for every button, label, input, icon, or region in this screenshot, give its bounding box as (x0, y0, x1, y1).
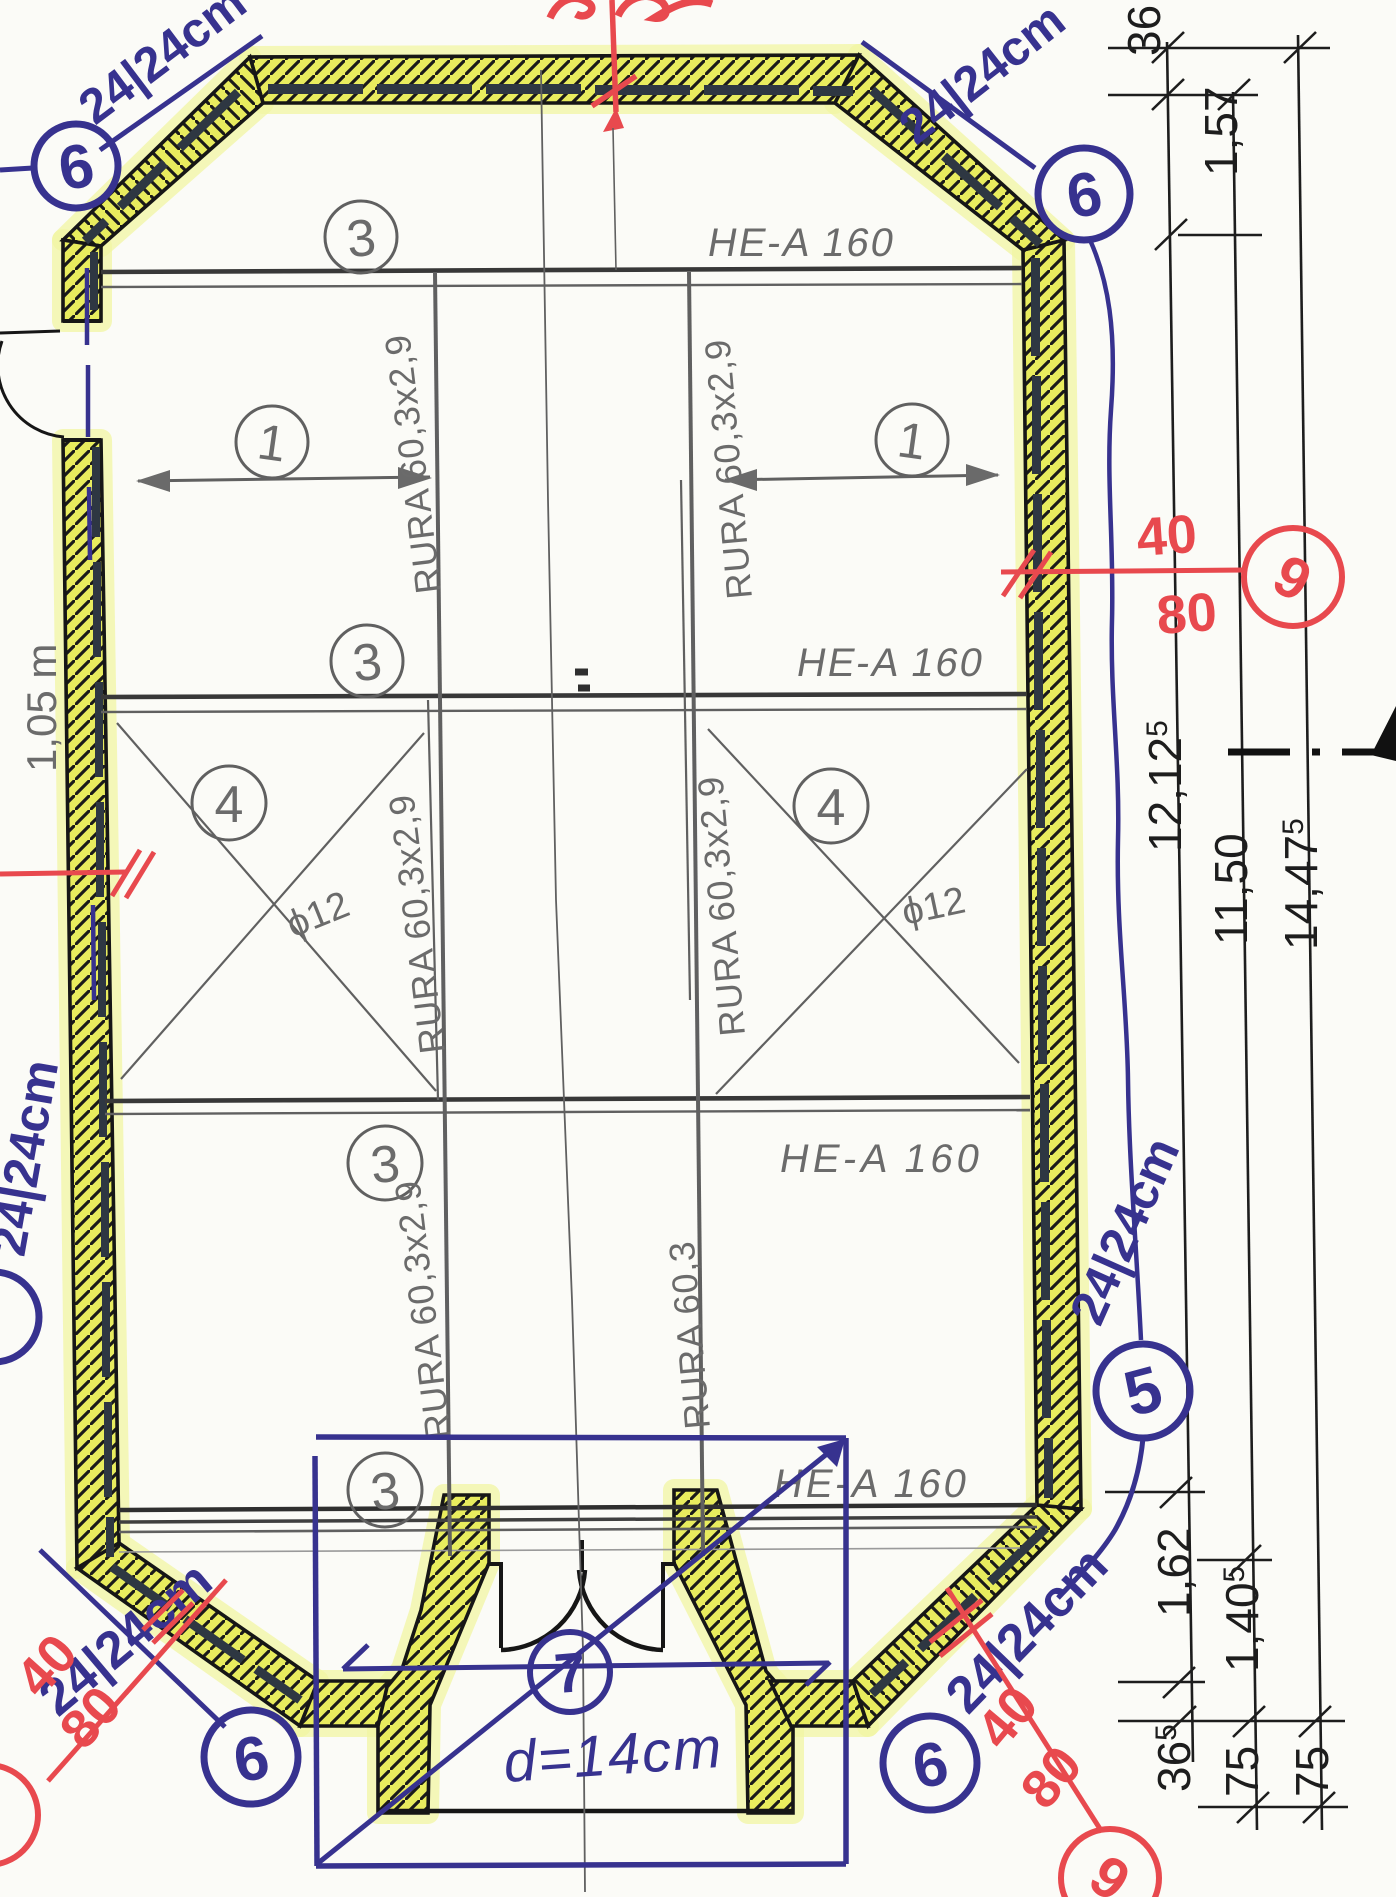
svg-text:3: 3 (350, 633, 385, 694)
svg-text:3: 3 (344, 209, 379, 270)
svg-text:40: 40 (1135, 504, 1199, 568)
svg-text:4: 4 (215, 776, 244, 834)
svg-text:14,475: 14,475 (1275, 818, 1327, 950)
svg-text:7: 7 (552, 1640, 589, 1705)
svg-text:80: 80 (1155, 582, 1219, 646)
svg-text:HE-A 160: HE-A 160 (776, 1136, 987, 1181)
svg-text:3: 3 (368, 1462, 403, 1523)
svg-text:36: 36 (1118, 5, 1170, 56)
svg-text:1,05 m: 1,05 m (18, 644, 65, 772)
svg-text:1,57: 1,57 (1195, 86, 1247, 176)
svg-text:75: 75 (1216, 1746, 1268, 1797)
svg-text:75: 75 (1286, 1746, 1338, 1797)
svg-text:HE-A 160: HE-A 160 (770, 1461, 973, 1506)
svg-text:HE-A 160: HE-A 160 (704, 220, 899, 265)
svg-text:HE-A 160: HE-A 160 (793, 640, 988, 685)
svg-text:12,125: 12,125 (1139, 720, 1191, 852)
svg-text:11,50: 11,50 (1205, 833, 1257, 945)
svg-text:4: 4 (817, 779, 846, 837)
svg-text:1,62: 1,62 (1148, 1527, 1200, 1617)
